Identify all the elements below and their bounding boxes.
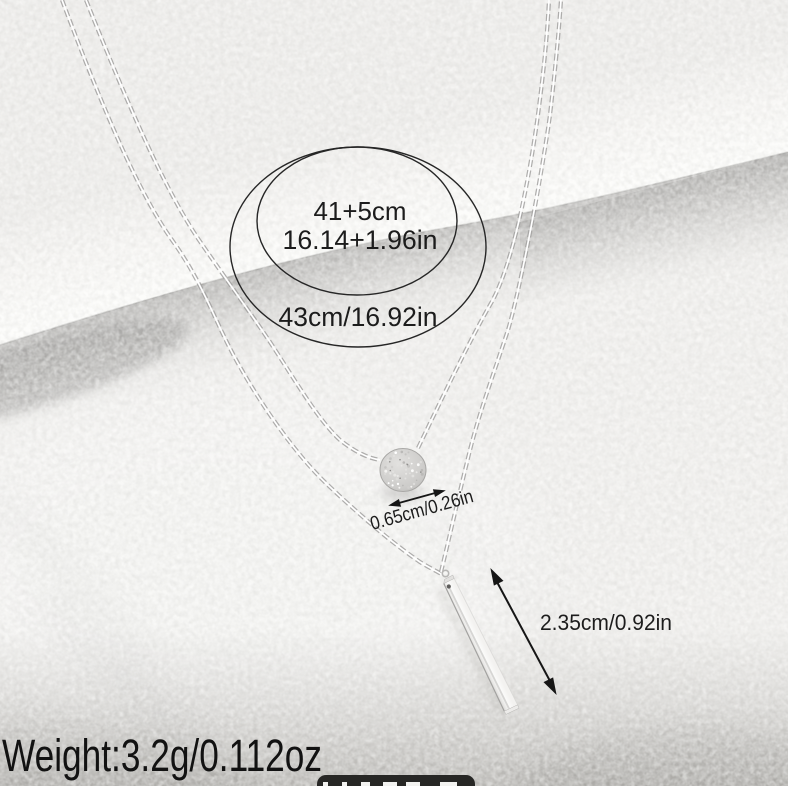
svg-text:2.35cm/0.92in: 2.35cm/0.92in: [540, 610, 672, 635]
svg-text:Weight:3.2g/0.112oz: Weight:3.2g/0.112oz: [2, 730, 322, 781]
svg-text:43cm/16.92in: 43cm/16.92in: [279, 302, 438, 332]
svg-text:16.14+1.96in: 16.14+1.96in: [283, 225, 438, 255]
svg-text:41+5cm: 41+5cm: [314, 196, 407, 226]
